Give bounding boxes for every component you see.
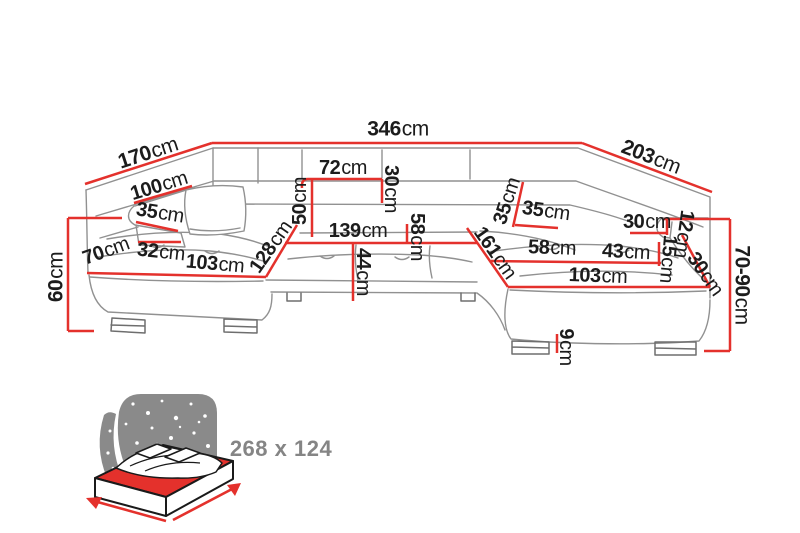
dim-label-43cm: 43cm bbox=[602, 241, 651, 263]
dim-label-60cm: 60cm bbox=[46, 252, 67, 302]
dim-label-103cm-left: 103cm bbox=[185, 251, 245, 276]
diagram-canvas: 170cm 346cm 203cm 60cm 100cm 35cm 70cm 3… bbox=[0, 0, 800, 533]
dim-label-72cm: 72cm bbox=[319, 158, 367, 178]
dim-label-103cm-right: 103cm bbox=[568, 265, 627, 287]
dim-label-9cm: 9cm bbox=[556, 328, 576, 365]
dim-label-58cm-right: 58cm bbox=[528, 237, 577, 259]
line-35-center-h bbox=[515, 225, 558, 228]
pillow bbox=[185, 186, 246, 235]
sleeping-function-icon bbox=[86, 394, 241, 521]
dim-label-70-90cm: 70-90cm bbox=[732, 245, 753, 324]
dim-label-15cm: 15cm bbox=[656, 234, 680, 283]
bed-size-label: 268 x 124 bbox=[230, 436, 332, 462]
dim-label-346cm: 346cm bbox=[367, 119, 429, 140]
dim-label-32cm: 32cm bbox=[136, 240, 186, 265]
dim-label-44cm: 44cm bbox=[353, 248, 373, 296]
dim-label-50cm: 50cm bbox=[290, 177, 310, 225]
dim-label-58cm-mid: 58cm bbox=[407, 213, 427, 261]
dim-label-30cm-right: 30cm bbox=[623, 212, 671, 232]
dim-label-30cm-top: 30cm bbox=[381, 165, 401, 213]
dim-label-139cm: 139cm bbox=[329, 221, 388, 241]
sofa-dimension-drawing bbox=[0, 0, 800, 533]
